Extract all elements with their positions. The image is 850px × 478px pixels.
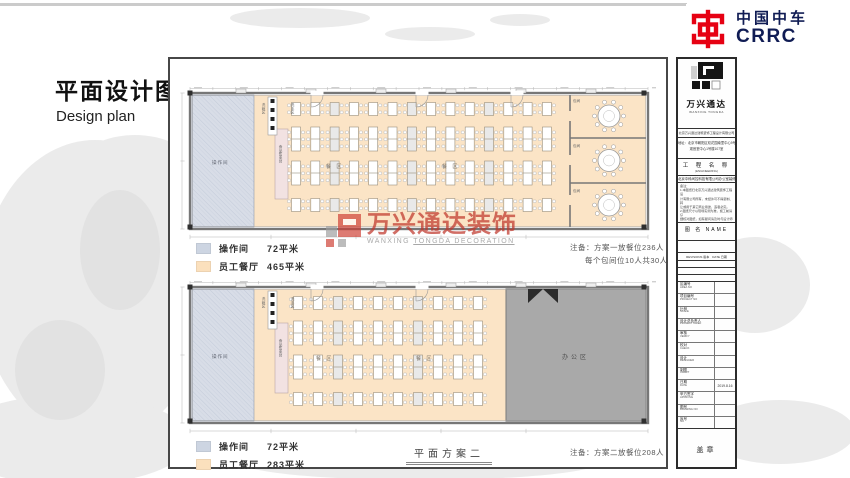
serving-counter bbox=[275, 129, 288, 199]
handwash-area-label: 洗手区 bbox=[290, 102, 295, 114]
attr-value bbox=[715, 368, 735, 379]
plan2-legend: 操作间 72平米 员工餐厅 283平米 bbox=[196, 440, 305, 476]
serving-counter-label: 食品售卖台 bbox=[278, 144, 283, 163]
attr-en: APPROVE bbox=[680, 397, 713, 400]
legend-item: 操作间 72平米 bbox=[196, 440, 305, 452]
project-label-en: (ENGINEERING) bbox=[678, 169, 735, 173]
watermark-text-en: WANXING TONGDA DECORATION bbox=[367, 238, 517, 245]
note-line: 注备：方案一放餐位236人 bbox=[570, 242, 668, 255]
attr-value bbox=[715, 331, 735, 342]
attr-value bbox=[715, 356, 735, 367]
address-line: 观音堂中心1号楼107室 bbox=[678, 146, 735, 152]
title-block: 万兴通达 WANXING TONGDA 北京万兴通达建筑装饰工程设计有限公司 地… bbox=[676, 57, 737, 469]
titleblock-project-label: 工 程 名 称 (ENGINEERING) bbox=[678, 159, 735, 176]
project-label-cn: 工 程 名 称 bbox=[678, 161, 735, 169]
brand-name-en: CRRC bbox=[736, 27, 808, 47]
legend-item: 员工餐厅 283平米 bbox=[196, 458, 305, 470]
attr-row: 设计总负责人PROJECT CHIEF bbox=[678, 319, 735, 331]
attr-row: 校对CHECK bbox=[678, 343, 735, 355]
plan2-caption: 平面方案二 bbox=[406, 445, 492, 465]
legend-value: 72平米 bbox=[267, 440, 299, 453]
attr-en: CHECK bbox=[680, 348, 713, 351]
serving-counter-label: 食品售卖台 bbox=[278, 338, 283, 357]
attr-en: AREA NO bbox=[680, 287, 713, 290]
floor-plan-2: 操作间 食品售卖台 洗碗区 洗手区 餐 区 餐 区 办公区 bbox=[176, 281, 656, 437]
titleblock-drawing-name: 图 名 NAME bbox=[678, 223, 735, 241]
attr-value bbox=[715, 307, 735, 318]
private-room-label: 包间 bbox=[573, 188, 581, 193]
attr-row: 序号NO bbox=[678, 417, 735, 428]
attr-row: 甲方签字APPROVE bbox=[678, 392, 735, 404]
attr-row: 日期DATE2019.8.16 bbox=[678, 380, 735, 392]
page-title: 平面设计图 bbox=[55, 72, 180, 106]
note-line: 每个包间位10人共30人 bbox=[570, 255, 668, 268]
private-room-label: 包间 bbox=[573, 98, 581, 103]
attr-row: 设计DESIGNER bbox=[678, 356, 735, 368]
remarks-line: 计有限公司所有，未经许可不得复制、转 bbox=[680, 197, 733, 205]
handwash-area-label: 洗手区 bbox=[290, 296, 295, 308]
attr-row: 审核VERIFY bbox=[678, 331, 735, 343]
drawing-sheet: 操作间 食品售卖台 洗碗区 洗手区 餐 区 餐 区 包间 包间 包间 操作间 7… bbox=[168, 57, 668, 469]
watermark-en-part1: WANXING bbox=[367, 238, 413, 245]
plan1-legend: 操作间 72平米 员工餐厅 465平米 bbox=[196, 242, 305, 278]
watermark-text-cn: 万兴通达装饰 bbox=[367, 213, 517, 237]
attr-en: PROJECT CHIEF bbox=[680, 323, 713, 326]
attr-en: DESIGNER bbox=[680, 360, 713, 363]
legend-item: 操作间 72平米 bbox=[196, 242, 305, 254]
dining-zone-label: 餐 区 bbox=[326, 163, 343, 170]
attr-row: 比例SCALE bbox=[678, 307, 735, 319]
legend-swatch-canteen bbox=[196, 459, 211, 470]
office-area-label: 办公区 bbox=[562, 353, 589, 361]
legend-label: 员工餐厅 bbox=[219, 458, 267, 471]
attr-value bbox=[715, 319, 735, 330]
titleblock-revisions: REVISIONS 版本 DATE 日期 bbox=[678, 253, 735, 261]
titleblock-project-name: 北京中科间控科技有限公司办公室装修 bbox=[678, 176, 735, 183]
legend-label: 操作间 bbox=[219, 440, 267, 453]
attr-en: SCALE bbox=[680, 311, 713, 314]
washing-area-label: 洗碗区 bbox=[261, 296, 266, 308]
operation-room-label: 操作间 bbox=[212, 353, 229, 360]
attr-row: 制图CHART bbox=[678, 368, 735, 380]
top-divider-line bbox=[0, 3, 687, 6]
titleblock-address: 地址：北京市朝阳区双花园南里中心9号 观音堂中心1号楼107室 bbox=[678, 138, 735, 159]
titleblock-company: 北京万兴通达建筑装饰工程设计有限公司 bbox=[678, 129, 735, 138]
attr-value bbox=[715, 417, 735, 428]
legend-value: 465平米 bbox=[267, 260, 305, 273]
attr-row: 图号DRAWING NO bbox=[678, 405, 735, 417]
slide-page: 中国中车 CRRC 平面设计图 Design plan bbox=[0, 0, 850, 478]
attr-en: NO bbox=[680, 421, 713, 424]
attr-value bbox=[715, 294, 735, 305]
titleblock-brand-en: WANXING TONGDA bbox=[678, 110, 735, 114]
legend-value: 72平米 bbox=[267, 242, 299, 255]
titleblock-seal: 盖章 bbox=[678, 429, 735, 471]
attr-value bbox=[715, 343, 735, 354]
note-line: 注备：方案二放餐位208人 bbox=[570, 447, 668, 460]
serving-counter bbox=[275, 323, 288, 393]
legend-label: 员工餐厅 bbox=[219, 260, 267, 273]
legend-swatch-operation bbox=[196, 243, 211, 254]
washing-area-label: 洗碗区 bbox=[261, 102, 266, 114]
titleblock-logo-section: 万兴通达 WANXING TONGDA bbox=[678, 59, 735, 129]
watermark: 万兴通达装饰 WANXING TONGDA DECORATION bbox=[326, 213, 517, 251]
titleblock-empty-box bbox=[678, 241, 735, 253]
crrc-logo: 中国中车 CRRC bbox=[686, 4, 844, 54]
plan2-note: 注备：方案二放餐位208人 bbox=[570, 447, 668, 460]
titleblock-attributes: 区编号AREA NO 项目编号PROJECT NO 比例SCALE 设计总负责人… bbox=[678, 282, 735, 429]
attr-value-date: 2019.8.16 bbox=[715, 380, 735, 391]
attr-en: CHART bbox=[680, 372, 713, 375]
attr-row: 区编号AREA NO bbox=[678, 282, 735, 294]
attr-en: VERIFY bbox=[680, 336, 713, 339]
attr-en: PROJECT NO bbox=[680, 299, 713, 302]
brand-name-cn: 中国中车 bbox=[736, 11, 808, 27]
page-subtitle: Design plan bbox=[56, 108, 135, 125]
titleblock-remarks: 备注： 1.本图纸归北京万兴通达建筑装饰工程设 计有限公司所有，未经许可不得复制… bbox=[678, 183, 735, 223]
titleblock-brand-cn: 万兴通达 bbox=[678, 98, 735, 110]
attr-value bbox=[715, 392, 735, 403]
dining-zone-label: 餐 区 bbox=[316, 355, 333, 362]
legend-swatch-canteen bbox=[196, 261, 211, 272]
attr-value bbox=[715, 282, 735, 293]
dining-zone-label: 餐 区 bbox=[442, 163, 459, 170]
crrc-emblem-icon bbox=[686, 7, 730, 51]
legend-swatch-operation bbox=[196, 441, 211, 452]
plan1-note: 注备：方案一放餐位236人 每个包间位10人共30人 bbox=[570, 242, 668, 268]
attr-value bbox=[715, 405, 735, 416]
legend-value: 283平米 bbox=[267, 458, 305, 471]
attr-en: DATE bbox=[680, 385, 713, 388]
private-room-label: 包间 bbox=[573, 143, 581, 148]
titleblock-blank-row bbox=[678, 275, 735, 282]
attr-en: DRAWING NO bbox=[680, 409, 713, 412]
legend-label: 操作间 bbox=[219, 242, 267, 255]
titleblock-blank-row bbox=[678, 268, 735, 275]
titleblock-blank-row bbox=[678, 261, 735, 268]
operation-room-label: 操作间 bbox=[212, 159, 229, 166]
attr-row: 项目编号PROJECT NO bbox=[678, 294, 735, 306]
dining-zone-label: 餐 区 bbox=[416, 355, 433, 362]
watermark-logo-icon bbox=[326, 213, 362, 251]
watermark-en-part2: TONGDA DECORATION bbox=[413, 238, 514, 245]
remarks-line: 1.本图纸归北京万兴通达建筑装饰工程设 bbox=[680, 188, 733, 196]
wanxing-logo-icon bbox=[691, 62, 723, 92]
legend-item: 员工餐厅 465平米 bbox=[196, 260, 305, 272]
